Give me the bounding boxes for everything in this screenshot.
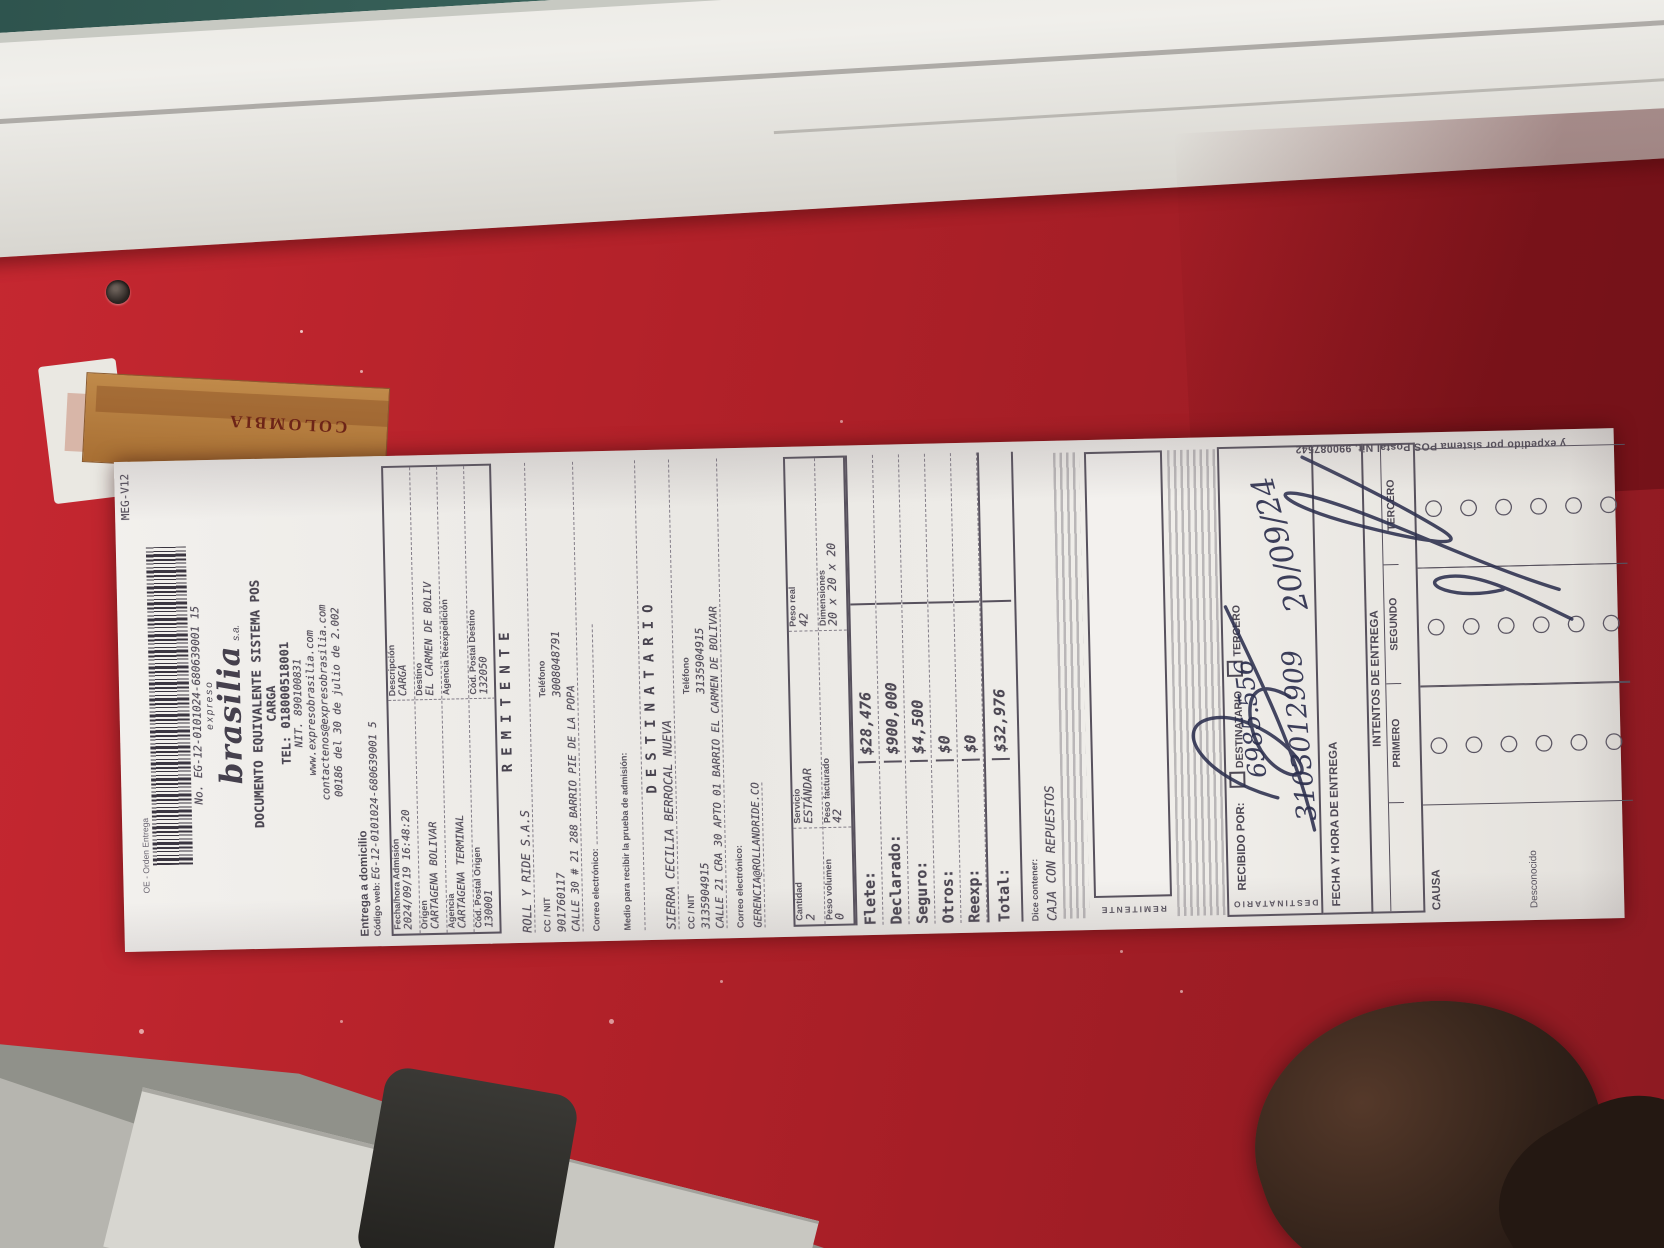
barcode — [146, 547, 193, 866]
charge-value: $4,500 — [906, 604, 928, 762]
charges-table: Flete:$28,476 Declarado:$900,000 Seguro:… — [845, 452, 1024, 926]
sender-side-label: REMITENTE — [1091, 898, 1175, 920]
sill-groove — [0, 14, 1664, 126]
cause-label: CAUSA — [1429, 806, 1443, 910]
brand-logo: expreso brasilia s.a. — [200, 469, 252, 940]
field-label: CC / NIT — [542, 897, 553, 932]
field-label: CC / NIT — [686, 894, 697, 929]
charge-label: Flete: — [857, 763, 879, 925]
mark-circles-first: ○○○○○○○ — [1420, 681, 1633, 806]
field-label: Teléfono — [680, 657, 691, 694]
received-by-label: RECIBIDO POR: — [1235, 802, 1249, 890]
cause-grid: CAUSA Desconocido ○○○○○○○ ○○○○○○○ ○○○○○○… — [1415, 438, 1636, 913]
paint-speckles — [300, 330, 303, 333]
charge-label: Seguro: — [909, 762, 931, 924]
charge-label: Otros: — [935, 761, 957, 923]
fine-print-illegible — [1167, 449, 1226, 916]
photo-scene: COLOMBIA MEG-V12 OE - Orden Entrega No. … — [0, 0, 1664, 1248]
web-code-value: EG-12-0101024-680639001 5 — [367, 721, 383, 879]
charge-value: $0 — [958, 603, 980, 761]
field-label: Correo electrónico: — [590, 848, 602, 931]
field-value: 2 — [803, 832, 816, 920]
admission-table: Fecha/hora Admisión2024/09/19 16:48:20 D… — [381, 464, 502, 936]
field-label: Teléfono — [536, 661, 547, 698]
sender-signature-box — [1084, 450, 1172, 898]
contents-label: Dice contener: — [1029, 859, 1040, 922]
sender-email — [592, 624, 598, 844]
checkbox-tercero-label: TERCERO — [1230, 605, 1243, 657]
recipient-section: DESTINATARIO SIERRA CECILIA BERROCAL NUE… — [635, 457, 794, 930]
charge-label: Reexp: — [961, 761, 983, 923]
field-label: Correo electrónico: — [734, 845, 746, 928]
service-table: Cantidad2 ServicioESTÁNDAR Peso real42 P… — [783, 456, 856, 927]
brand-suffix-text: s.a. — [231, 625, 242, 641]
doc-version: MEG-V12 — [118, 474, 132, 521]
attempt-second: SEGUNDO — [1384, 564, 1402, 683]
web-code-label: Código web: — [371, 882, 382, 936]
field-value: 20 x 20 x 20 — [824, 462, 839, 626]
brand-name-text: brasilia — [214, 645, 248, 785]
charge-value: $0 — [932, 603, 954, 761]
recipient-side-label: DESTINATARIO — [1229, 893, 1321, 915]
contents-value: CAJA CON REPUESTOS — [1041, 785, 1059, 921]
dark-object — [355, 1065, 581, 1248]
cause-option-unknown: Desconocido — [1527, 804, 1540, 908]
charge-label: Declarado: — [883, 762, 905, 924]
total-value: $32,976 — [988, 602, 1010, 760]
field-value: ESTÁNDAR — [799, 635, 815, 823]
shipping-receipt: MEG-V12 OE - Orden Entrega No. EG-12-010… — [114, 428, 1625, 952]
sender-section: REMITENTE ROLL Y RIDE S.A.S CC / NIT9017… — [491, 461, 620, 934]
receipt-header: MEG-V12 OE - Orden Entrega No. EG-12-010… — [118, 467, 359, 942]
screw-hole — [106, 280, 130, 304]
total-label: Total: — [991, 760, 1013, 922]
mark-circles-second: ○○○○○○○ — [1418, 563, 1631, 688]
attempt-third: TERCERO — [1381, 445, 1399, 564]
recipient-email: GERENCIA@ROLLANDRIDE.CO — [749, 782, 765, 928]
delivery-datetime-label: FECHA Y HORA DE ENTREGA — [1328, 742, 1344, 907]
charge-value: $900,000 — [880, 604, 902, 762]
doc-side-label: OE - Orden Entrega — [140, 818, 152, 894]
charge-value: $28,476 — [854, 605, 876, 763]
sender-signature-row: REMITENTE — [1081, 448, 1176, 920]
field-value: 0 — [833, 832, 846, 920]
mark-circles-third: ○○○○○○○ — [1415, 444, 1628, 569]
attempt-first: PRIMERO — [1386, 683, 1404, 803]
